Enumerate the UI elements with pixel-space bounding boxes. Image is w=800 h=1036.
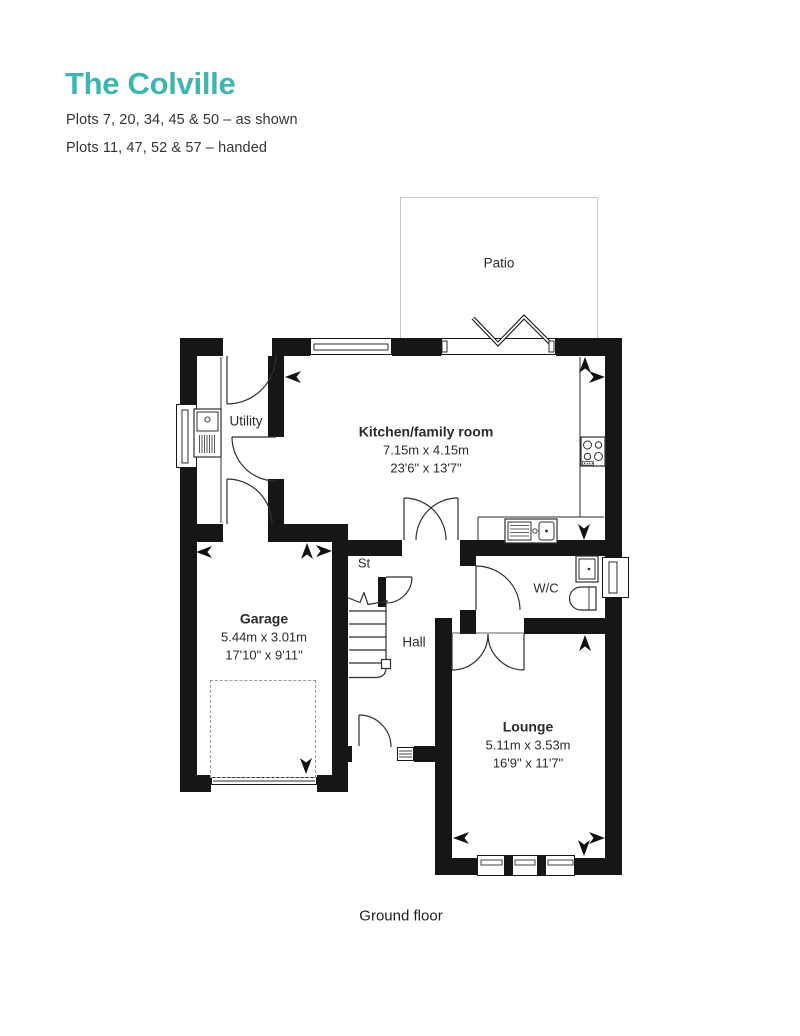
wall: [605, 338, 622, 559]
room-label-garage: Garage 5.44m x 3.01m 17'10" x 9'11": [221, 610, 307, 665]
wall: [332, 746, 352, 762]
room-label-utility: Utility: [230, 414, 263, 429]
kitchen-name: Kitchen/family room: [359, 423, 494, 442]
lounge-double-doors: [452, 633, 524, 670]
utility-lobby-door: [227, 479, 272, 524]
wall: [272, 338, 310, 356]
kitchen-dim-arrow-right: [589, 371, 605, 383]
kitchen-window: [310, 338, 392, 355]
garage-dims-imperial: 17'10" x 9'11": [221, 647, 307, 665]
wall: [460, 540, 622, 556]
garage-door-zone: [210, 680, 316, 778]
wall: [317, 775, 348, 792]
plots-as-shown-text: Plots 7, 20, 34, 45 & 50 – as shown: [66, 112, 298, 128]
wall: [180, 338, 197, 408]
utility-kitchen-door: [232, 437, 276, 481]
wall: [460, 556, 476, 566]
page-title: The Colville: [65, 66, 235, 102]
wc-basin: [576, 556, 598, 582]
patio-bifold-door: [441, 338, 556, 355]
utility-window: [176, 404, 197, 468]
wall: [180, 775, 211, 792]
kitchen-dim-arrow-left: [285, 371, 301, 383]
lounge-window-mullion: [504, 856, 513, 875]
wall: [268, 356, 284, 437]
front-door: [359, 715, 391, 747]
lounge-dim-arrow-right: [589, 832, 605, 844]
lounge-window: [477, 855, 575, 876]
kitchen-double-doors: [404, 498, 458, 540]
wc-window: [602, 557, 629, 598]
lounge-dims-metric: 5.11m x 3.53m: [485, 737, 570, 755]
garage-dims-metric: 5.44m x 3.01m: [221, 629, 307, 647]
floorplan-page: The Colville Plots 7, 20, 34, 45 & 50 – …: [0, 0, 800, 1036]
wall: [435, 618, 452, 875]
wall: [348, 540, 402, 556]
garage-dim-arrow-up: [301, 543, 313, 559]
wall: [524, 618, 622, 634]
wc-toilet: [570, 587, 597, 610]
room-label-patio: Patio: [484, 256, 515, 271]
room-label-hall: Hall: [402, 635, 425, 650]
utility-sink: [194, 409, 221, 457]
garage-dim-arrow-left: [196, 546, 212, 558]
lounge-dim-arrow-left: [453, 832, 469, 844]
garage-dim-arrow-right: [316, 545, 332, 557]
wall: [180, 466, 197, 792]
wall: [575, 858, 622, 875]
wall: [392, 338, 441, 356]
wc-door: [476, 566, 520, 610]
wall: [196, 524, 223, 542]
kitchen-dims-imperial: 23'6" x 13'7": [359, 460, 494, 478]
room-label-wc: W/C: [533, 581, 558, 596]
lounge-dims-imperial: 16'9" x 11'7": [485, 755, 570, 773]
wall: [460, 610, 476, 634]
kitchen-dim-arrow-up: [579, 357, 591, 373]
lounge-name: Lounge: [485, 718, 570, 737]
room-label-kitchen: Kitchen/family room 7.15m x 4.15m 23'6" …: [359, 423, 494, 478]
plots-handed-text: Plots 11, 47, 52 & 57 – handed: [66, 140, 267, 156]
wall: [435, 858, 477, 875]
kitchen-dims-metric: 7.15m x 4.15m: [359, 442, 494, 460]
garage-door: [211, 777, 317, 785]
hob: [581, 437, 605, 466]
lounge-dim-arrow-up: [579, 635, 591, 651]
kitchen-dim-arrow-down: [578, 524, 590, 540]
lounge-dim-arrow-down: [578, 840, 590, 856]
wall: [605, 596, 622, 875]
room-label-lounge: Lounge 5.11m x 3.53m 16'9" x 11'7": [485, 718, 570, 773]
wall: [414, 746, 435, 762]
front-door-sidelight: [397, 747, 414, 761]
lounge-window-mullion: [537, 856, 546, 875]
wall: [378, 577, 386, 607]
floor-caption: Ground floor: [359, 908, 442, 925]
garage-name: Garage: [221, 610, 307, 629]
st-door: [386, 577, 412, 603]
room-label-st: St: [358, 556, 370, 571]
